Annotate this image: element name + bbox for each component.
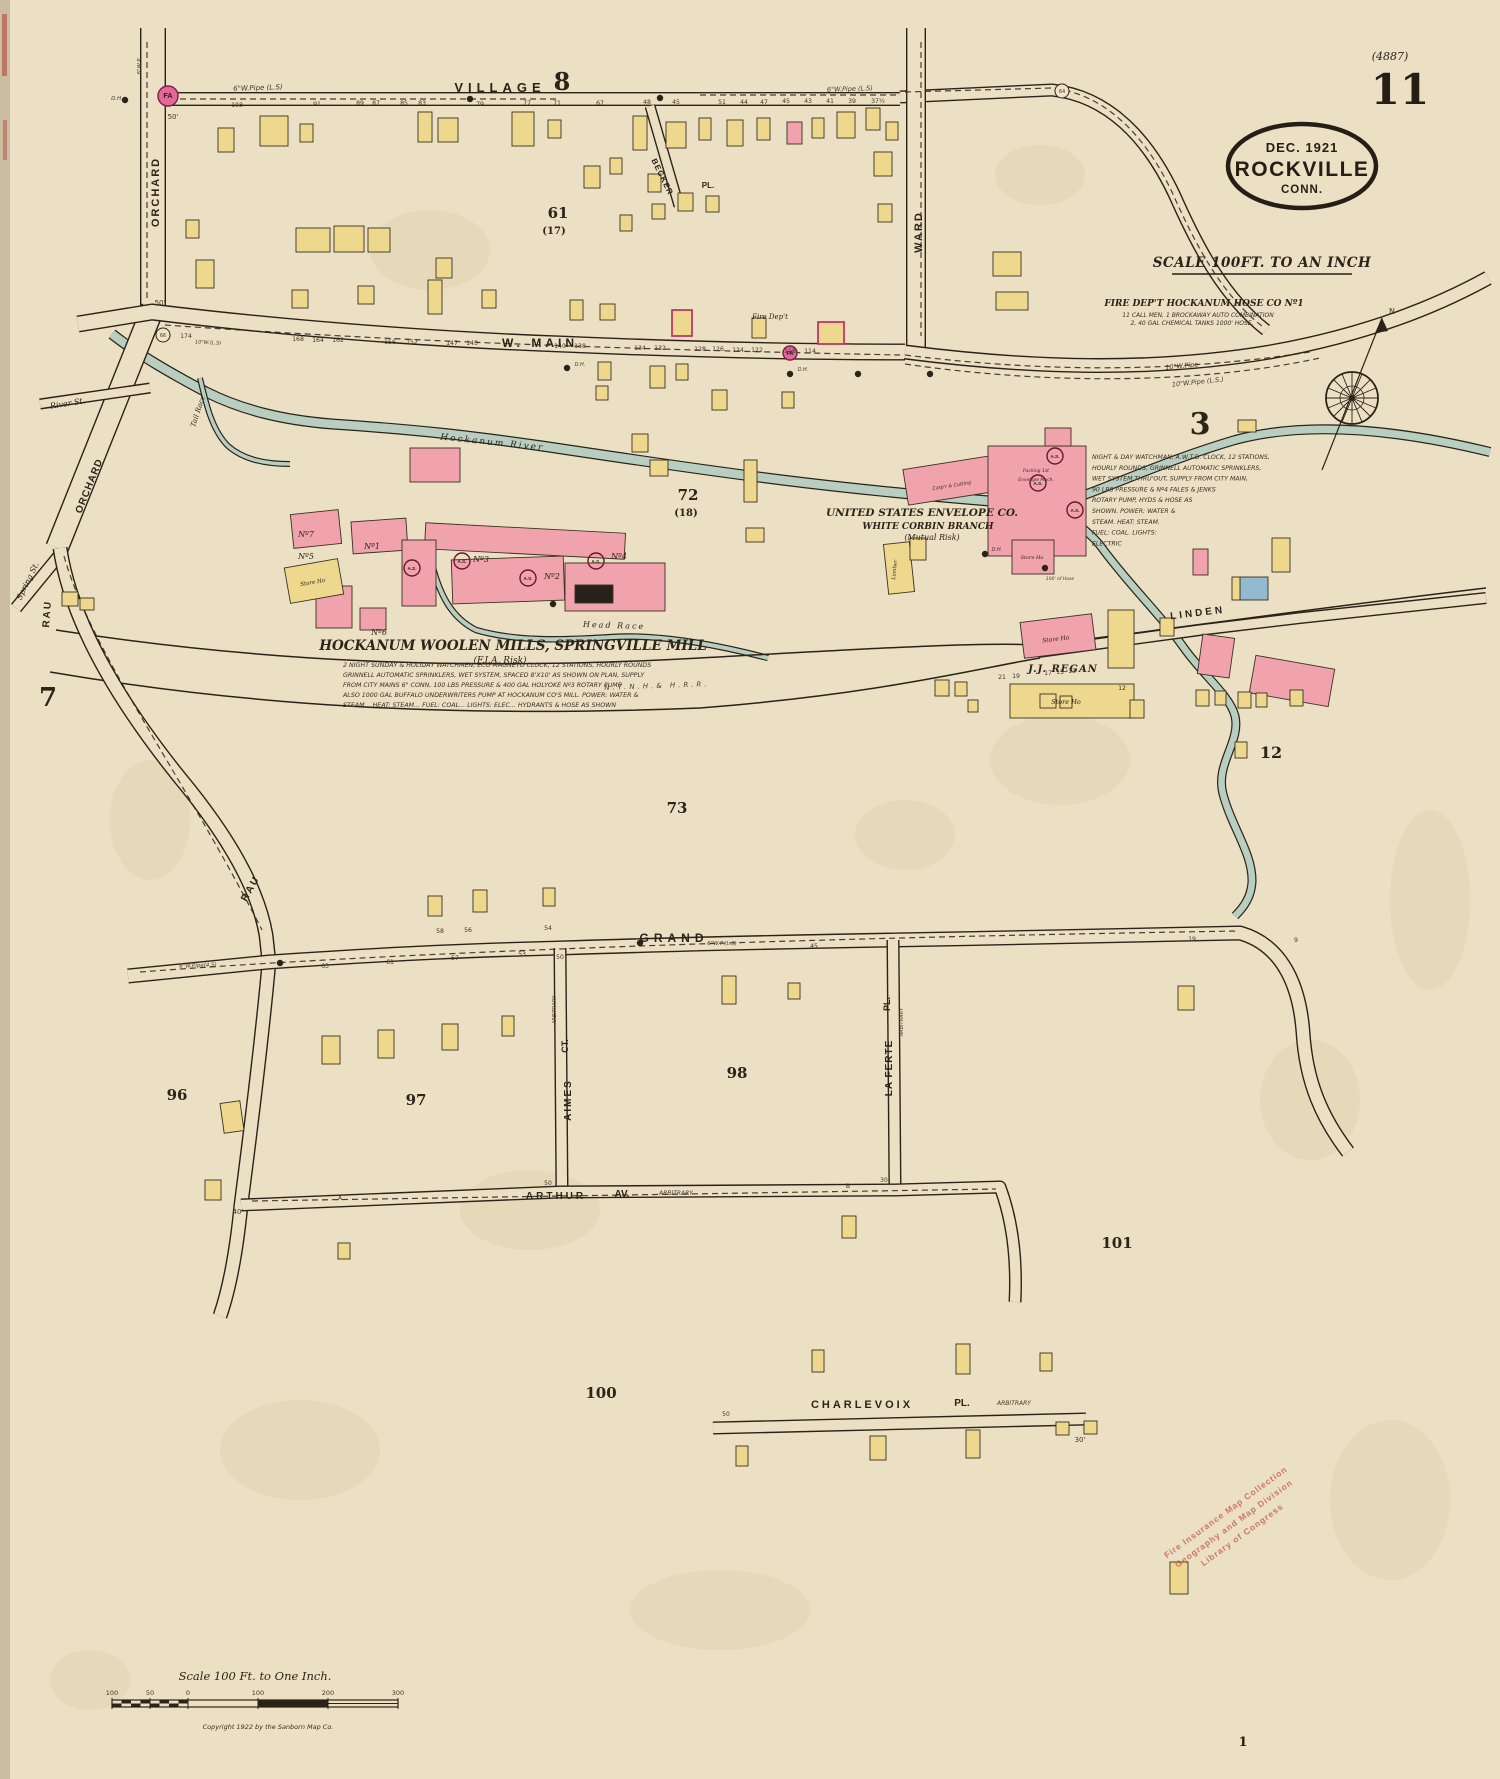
note-us-envelope: SHOWN. POWER: WATER & [1092,508,1176,515]
map-label: Nº3 [472,555,489,564]
building [600,304,615,320]
building [746,528,764,542]
sanborn-map-sheet: FAFA6466A.S.A.S.A.S.A.S.A.S.A.S.A.S. VIL… [0,0,1500,1779]
house-number: 143 [466,340,478,347]
house-number: 54 [544,925,552,932]
house-number: 71 [553,100,561,107]
house-number: 89 [356,100,364,107]
note-us-envelope: FUEL: COAL. LIGHTS: [1092,530,1157,537]
street-label-rau: RAU [41,600,54,628]
map-label: D.H. [575,362,586,368]
map-label: 6"W.Pipe (L.S) [827,84,873,94]
building [782,392,794,408]
map-label: 50' [155,299,166,307]
map-label: ARBITRARY [658,1190,694,1197]
house-number: 132 [654,345,666,352]
house-number: 45 [810,943,818,950]
auto-sprinkler-label: A.S. [408,566,417,571]
map-label: 30' [1075,1436,1086,1444]
building [436,258,452,278]
map-label: 6"W.P.(L.S) [707,941,737,947]
building [712,390,727,410]
building [1178,986,1194,1010]
house-number: 87 [372,100,380,107]
building [220,1101,244,1133]
street-aimes-ct [560,948,562,1192]
building [512,112,534,146]
building [410,448,460,482]
house-number: 67 [596,100,604,107]
map-label: 50' [168,113,179,121]
street-label-w-main: W. MAIN [502,336,578,350]
building [438,118,458,142]
building [666,122,686,148]
building [650,366,665,388]
map-label: (Mutual Risk) [904,533,959,542]
map-label: Nº5 [297,552,314,561]
house-number: 85 [400,100,408,107]
hydrant-symbol [855,371,861,377]
house-number: 58 [436,928,444,935]
building [1215,691,1226,705]
building [543,888,555,906]
house-number: 17 [1044,670,1052,677]
note-hockanum-mills: 2 NIGHT SUNDAY & HOLIDAY WATCHMEN, ECO M… [343,662,651,669]
map-city: ROCKVILLE [1235,158,1370,181]
building [874,152,892,176]
block-number-101: 101 [1101,1234,1132,1252]
house-number: 21 [998,674,1006,681]
building [988,446,1086,556]
block-number-73: 73 [667,799,688,817]
fire-dept-note-line: 11 CALL MEN, 1 BROCKAWAY AUTO COMBINATIO… [1122,312,1274,319]
building [1272,538,1290,572]
scale-bar-cell [179,1700,189,1704]
building [866,108,880,130]
building [650,460,668,476]
building [296,228,330,252]
scale-tick: 100 [252,1689,264,1697]
building [442,1024,458,1050]
fire-dept-note-title: FIRE DEP'T HOCKANUM HOSE CO Nº1 [1103,299,1303,309]
map-date: DEC. 1921 [1266,140,1339,155]
building [1056,1422,1069,1435]
house-number: 152 [406,339,418,346]
map-label: Envelope Mach. [1018,477,1054,483]
map-label: (17) [542,226,565,237]
building [322,1036,340,1064]
street-label-aimes-ct: CT. [560,1039,570,1053]
street-label-ward: WARD [913,211,925,253]
building [260,116,288,146]
building [334,226,364,252]
building [1290,690,1303,706]
map-label: Store Ho [1051,698,1081,706]
house-number: 156 [384,339,396,346]
map-label: PL. [954,1398,970,1409]
building [966,1430,980,1458]
auto-sprinkler-label: A.S. [1051,454,1060,459]
binding-edge [0,0,10,1779]
valve-label: 66 [160,333,166,339]
building [584,166,600,188]
house-number: 147 [446,340,458,347]
building [956,1344,970,1374]
street-label-la-ferte: LA FERTE [884,1040,895,1097]
copyright-line: Copyright 1922 by the Sanborn Map Co. [203,1723,334,1731]
house-number: 162 [332,337,344,344]
scale-bar-segment [258,1700,328,1707]
street-label-village: VILLAGE [454,80,545,95]
house-number: 114 [804,348,816,355]
building [428,280,442,314]
street-label-grand: GRAND [640,931,709,945]
scale-bar-cell [150,1704,160,1708]
house-number: 164 [312,337,324,344]
building [837,112,855,138]
scale-tick: 100 [106,1689,118,1697]
building [378,1030,394,1058]
page-number: 1 [1238,1735,1247,1750]
map-label: Nº6 [370,628,387,637]
house-number: 126 [712,346,724,353]
binding-mark [2,14,7,76]
hydrant-symbol [787,371,793,377]
building [968,700,978,712]
building [757,118,770,140]
block-number-61: 61 [548,204,569,222]
house-number: 124 [732,347,744,354]
building [1238,692,1251,708]
street-label-charlevoix: CHARLEVOIX [811,1399,913,1411]
fire-dept-note-line: 2, 40 GAL CHEMICAL TANKS 1000' HOSE. [1130,320,1253,327]
building [186,220,199,238]
map-label: D.H. [798,367,809,373]
building [870,1436,886,1460]
label-fire-dept: Fire Dep't [751,313,788,321]
scale-bar-caption: Scale 100 Ft. to One Inch. [179,1669,332,1683]
map-label: 6"W.P. [137,57,143,74]
house-number: 134 [634,345,646,352]
note-hockanum-mills: STEAM... HEAT: STEAM... FUEL: COAL... LI… [343,702,616,709]
building [1193,549,1208,575]
binding-mark [3,120,7,160]
scale-bar-cell [112,1704,122,1708]
map-label: ARBITRARY [552,995,558,1025]
fire-alarm-label: FA [163,91,172,100]
scale-bar-cell [141,1700,151,1704]
map-label: Nº4 [610,552,627,561]
block-number-12: 12 [1260,743,1282,762]
building [292,290,308,308]
hydrant-symbol [657,95,663,101]
building [652,204,665,219]
note-hockanum-mills: GRINNELL AUTOMATIC SPRINKLERS, WET SYSTE… [343,672,645,679]
building [812,118,824,138]
building [596,386,608,400]
house-number: 118 [784,348,796,355]
house-number: 128 [694,346,706,353]
street-label-arthur: ARTHUR [526,1191,586,1202]
building [1130,700,1144,718]
building [955,682,967,696]
building [428,896,442,916]
building [482,290,496,308]
building [1040,1353,1052,1371]
street-label-becker-pl: PL. [702,181,714,190]
house-number: 45 [782,98,790,105]
house-number: 122 [751,347,763,354]
house-number: 91 [313,101,321,108]
building [886,122,898,140]
map-label: ARBITRARY [899,1007,905,1037]
house-number: 39 [848,98,856,105]
scale-bar-cell [122,1700,132,1704]
note-us-envelope: STEAM. HEAT: STEAM. [1092,519,1160,526]
hydrant-symbol [982,551,988,557]
building [1240,577,1268,600]
house-number: 138 [574,343,586,350]
map-label: WHITE CORBIN BRANCH [862,522,994,532]
house-number: 168 [292,336,304,343]
building [996,292,1028,310]
hydrant-symbol [1042,565,1048,571]
auto-sprinkler-label: A.S. [458,559,467,564]
house-number: 56 [464,927,472,934]
building [1256,693,1267,707]
label-us-envelope-co: UNITED STATES ENVELOPE CO. [826,507,1018,519]
house-number: 79 [476,101,484,108]
valve-label: 64 [1059,89,1065,95]
house-number: 103 [231,102,243,109]
house-number: 43 [804,98,812,105]
note-us-envelope: NIGHT & DAY WATCHMAN, A.W.T.D. CLOCK, 12… [1092,454,1270,461]
scale-tick: 50 [146,1689,154,1697]
street-label-orchard: ORCHARD [150,157,162,227]
building [205,1180,221,1200]
building [62,592,78,606]
building [878,204,892,222]
building [473,890,487,912]
map-label: PL. [882,997,892,1011]
building [1235,742,1247,758]
scale-tick: 0 [186,1689,190,1697]
plate-reference: (4887) [1372,50,1409,63]
house-number: 44 [740,99,748,106]
house-number: 77 [523,100,531,107]
hydrant-symbol [550,601,556,607]
building [1196,690,1209,706]
building [727,120,743,146]
map-label: 30 [880,1177,888,1184]
building [676,364,688,380]
building [722,976,736,1004]
compass-north-label: N [1389,307,1395,316]
note-us-envelope: HOURLY ROUNDS, GRINNELL AUTOMATIC SPRINK… [1092,465,1261,472]
building [620,215,632,231]
block-number-3: 3 [1190,407,1211,442]
map-label: (18) [674,508,697,519]
street-label-aimes: AIMES [563,1079,574,1121]
house-number: 83 [418,100,426,107]
building [787,122,802,144]
house-number: 63 [321,963,329,970]
note-us-envelope: WET SYSTEM THRU'OUT, SUPPLY FROM CITY MA… [1092,476,1248,483]
building [993,252,1021,276]
note-hockanum-mills: FROM CITY MAINS 6" CONN, 100 LBS PRESSUR… [343,682,622,689]
map-state: CONN. [1281,184,1323,196]
hydrant-symbol [927,371,933,377]
house-number: 13 [1068,668,1076,675]
building [744,460,757,502]
building [752,318,766,338]
map-label: 100' of Hose [1046,576,1075,582]
building [812,1350,824,1372]
block-number-98: 98 [727,1064,748,1082]
house-number: 45 [672,99,680,106]
map-label: Nº2 [543,572,560,581]
building [570,300,583,320]
map-canvas: FAFA6466A.S.A.S.A.S.A.S.A.S.A.S.A.S. VIL… [0,0,1500,1779]
hydrant-symbol [277,960,283,966]
building [502,1016,514,1036]
building [633,116,647,150]
block-number-72: 72 [678,486,699,504]
scale-heading: SCALE 100FT. TO AN INCH [1153,255,1372,271]
map-label: Store Ho [1021,555,1044,561]
building [575,585,613,603]
map-label: D.H. [992,547,1003,553]
sheet-number: 11 [1371,65,1429,114]
scale-bar-cell [169,1704,179,1708]
building [706,196,719,212]
building [1045,428,1071,446]
note-us-envelope: ROTARY PUMP, HYDS & HOSE AS [1092,497,1193,504]
house-number: 37½ [871,97,885,105]
building [300,124,313,142]
house-number: 19 [1012,673,1020,680]
block-number-100: 100 [585,1384,616,1402]
building [1197,634,1234,678]
house-number: 48 [643,99,651,106]
building [818,322,844,344]
building [1108,610,1134,668]
scale-tick: 200 [322,1689,334,1697]
map-label: 50 [544,1180,552,1187]
hydrant-symbol [564,365,570,371]
building [678,193,693,211]
house-number: 19 [1188,936,1196,943]
map-label: 50 [556,954,564,961]
building [699,118,711,140]
building [80,598,94,610]
house-number: 47 [760,99,768,106]
building [842,1216,856,1238]
building [672,310,692,336]
building [610,158,622,174]
map-label: 50 [722,1411,730,1418]
house-number: 140 [554,343,566,350]
house-number: 174 [180,333,192,340]
scale-bar-cell [160,1700,170,1704]
building [218,128,234,152]
note-hockanum-mills: ALSO 1000 GAL BUFFALO UNDERWRITERS PUMP … [342,692,638,699]
building [598,362,611,380]
auto-sprinkler-label: A.S. [1071,508,1080,513]
scale-bar-cell [131,1704,141,1708]
block-number-96: 96 [167,1086,188,1104]
map-label: ARBITRARY [996,1400,1032,1407]
block-number-8: 8 [554,67,571,96]
building [368,228,390,252]
auto-sprinkler-label: A.S. [524,576,533,581]
house-number: 9 [1294,937,1298,944]
house-number: 51 [718,99,726,106]
building [338,1243,350,1259]
house-number: 15 [1056,669,1064,676]
note-us-envelope: ELECTRIC [1092,540,1122,547]
building [290,510,341,549]
hydrant-symbol [467,96,473,102]
building [935,680,949,696]
building [196,260,214,288]
note-us-envelope: 90 LBS PRESSURE & Nº4 FALES & JENKS [1092,486,1216,493]
house-number: 61 [386,959,394,966]
building [1232,577,1240,600]
scale-tick: 300 [392,1689,404,1697]
map-label: 40' [233,1208,244,1216]
house-number: 12 [1118,685,1126,692]
map-label: Packing 1st [1023,468,1049,474]
building [360,608,386,630]
house-number: 57 [451,955,459,962]
building [418,112,432,142]
block-number-7: 7 [39,683,57,713]
map-label: D.H. [111,96,123,102]
building [548,120,561,138]
map-label: AV. [614,1189,629,1200]
building [736,1446,748,1466]
building [632,434,648,452]
building [1238,420,1256,432]
house-number: 53 [518,951,526,958]
house-number: 41 [826,98,834,105]
building [788,983,800,999]
block-number-97: 97 [406,1091,427,1109]
map-label: Nº1 [363,542,380,551]
auto-sprinkler-label: A.S. [592,559,601,564]
building [358,286,374,304]
house-number: B [846,1183,850,1190]
building [1084,1421,1097,1434]
map-label: Nº7 [297,530,315,539]
label-hockanum-woolen-mills: HOCKANUM WOOLEN MILLS, SPRINGVILLE MILL [318,638,706,654]
